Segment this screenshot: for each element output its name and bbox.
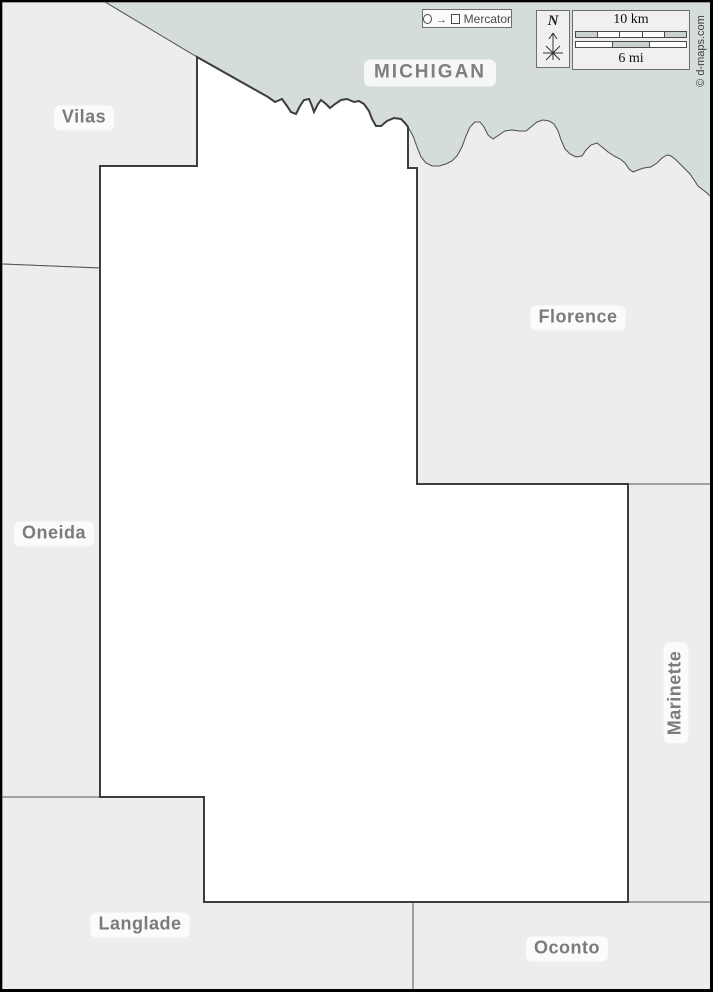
region-florence [408, 120, 711, 484]
scale-segment [665, 32, 686, 37]
region-label-oconto: Oconto [526, 937, 608, 962]
scale-segment [576, 42, 613, 47]
scale-segment [620, 32, 642, 37]
region-label-florence: Florence [530, 306, 625, 331]
compass-north-label: N [537, 14, 569, 29]
scale-segment [643, 32, 665, 37]
compass-star-icon [540, 30, 566, 64]
region-label-michigan: MICHIGAN [364, 60, 496, 87]
county-map: MICHIGAN Vilas Florence Oneida Marinette… [0, 0, 713, 992]
map-canvas [0, 0, 713, 992]
scale-mi-label: 6 mi [618, 52, 643, 66]
scale-segment [598, 32, 620, 37]
scale-legend: 10 km 6 mi [572, 10, 690, 70]
projection-badge: Mercator [422, 9, 512, 28]
projection-label: Mercator [464, 12, 511, 26]
scale-segment [613, 42, 650, 47]
scale-bar-km [575, 31, 687, 38]
compass: N [536, 10, 570, 68]
scale-bar-mi [575, 41, 687, 48]
scale-km-label: 10 km [613, 13, 648, 27]
region-label-oneida: Oneida [14, 522, 94, 547]
arrow-right-icon [436, 12, 447, 26]
circle-icon [423, 14, 432, 24]
scale-segment [576, 32, 598, 37]
map-credit: © d-maps.com [695, 15, 707, 87]
scale-segment [650, 42, 686, 47]
region-label-marinette: Marinette [664, 643, 689, 744]
region-label-langlade: Langlade [90, 913, 189, 938]
square-icon [451, 14, 460, 24]
region-label-vilas: Vilas [54, 106, 114, 131]
